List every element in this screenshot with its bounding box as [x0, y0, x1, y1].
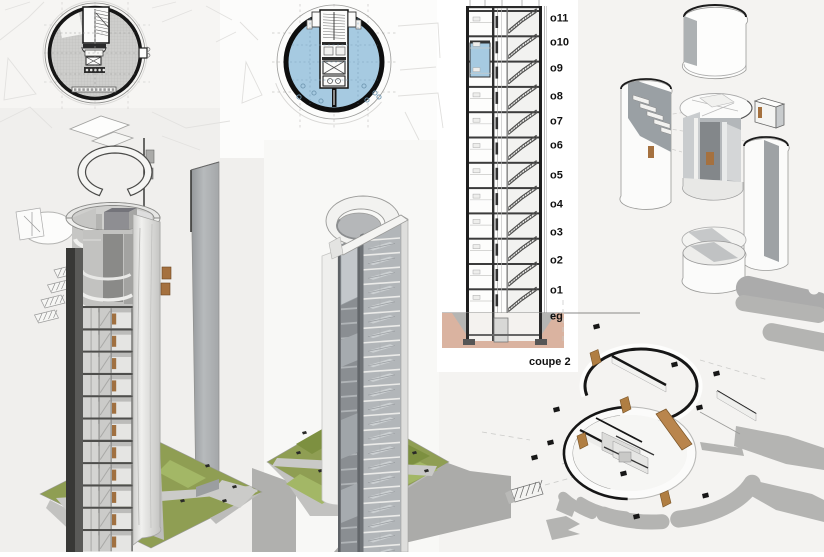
svg-text:o5: o5: [550, 170, 563, 182]
svg-text:o11: o11: [550, 13, 568, 25]
svg-text:o1: o1: [550, 285, 563, 297]
svg-text:o3: o3: [550, 227, 563, 239]
svg-text:o2: o2: [550, 255, 563, 267]
svg-text:o9: o9: [550, 63, 563, 75]
svg-text:coupe 2: coupe 2: [529, 356, 571, 368]
svg-text:eg: eg: [550, 311, 563, 323]
svg-text:o10: o10: [550, 37, 569, 49]
svg-text:o4: o4: [550, 199, 564, 211]
svg-text:o8: o8: [550, 91, 563, 103]
svg-text:o7: o7: [550, 116, 563, 128]
svg-text:o6: o6: [550, 140, 563, 152]
